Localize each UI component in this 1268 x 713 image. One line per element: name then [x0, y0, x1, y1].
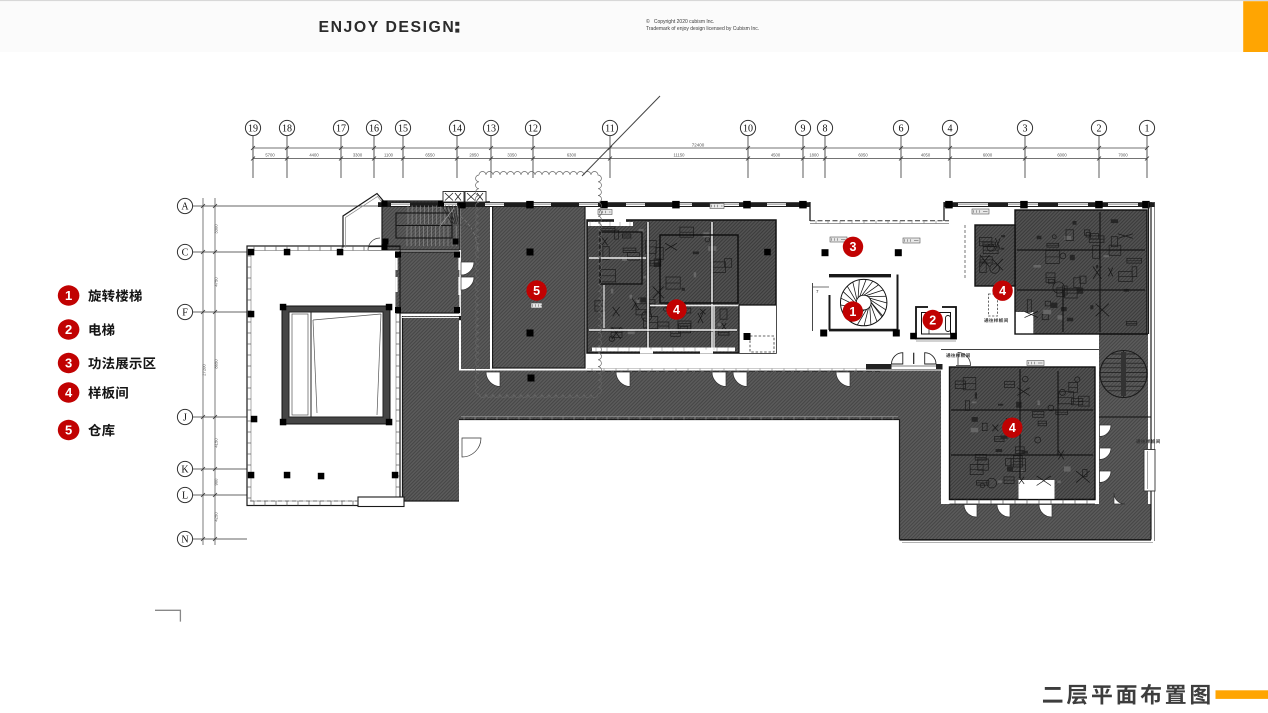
svg-text:6550: 6550	[425, 153, 435, 158]
svg-text:1: 1	[1145, 124, 1150, 135]
svg-text:2: 2	[1097, 124, 1102, 135]
svg-text:C: C	[182, 248, 189, 259]
svg-text:2: 2	[65, 322, 72, 337]
svg-text:6: 6	[899, 124, 904, 135]
svg-text:12: 12	[528, 124, 538, 135]
svg-text:900: 900	[214, 478, 219, 486]
svg-text:K: K	[181, 465, 189, 476]
svg-text:1: 1	[65, 288, 72, 303]
svg-text:72400: 72400	[692, 143, 705, 148]
svg-text:4400: 4400	[309, 153, 319, 158]
svg-text:3: 3	[65, 356, 72, 371]
svg-text:1100: 1100	[384, 153, 394, 158]
svg-text:3350: 3350	[507, 153, 517, 158]
svg-text:27200: 27200	[202, 364, 207, 376]
svg-text:2: 2	[929, 313, 936, 327]
svg-text:5: 5	[65, 423, 72, 438]
svg-text:4: 4	[948, 124, 953, 135]
svg-text:J: J	[183, 413, 187, 424]
svg-text:4750: 4750	[214, 277, 219, 287]
svg-text:4150: 4150	[214, 438, 219, 448]
svg-text:14: 14	[452, 124, 462, 135]
svg-text:3: 3	[850, 240, 857, 254]
svg-text:8650: 8650	[214, 359, 219, 369]
svg-text:6300: 6300	[567, 153, 577, 158]
svg-text:9: 9	[801, 124, 806, 135]
svg-text:6050: 6050	[858, 153, 868, 158]
svg-text:10: 10	[743, 124, 753, 135]
svg-text:L: L	[182, 491, 188, 502]
svg-text:8: 8	[823, 124, 828, 135]
svg-text:16: 16	[369, 124, 379, 135]
svg-text:4500: 4500	[771, 153, 781, 158]
svg-text:© Copyright 2020 cubism Inc.: © Copyright 2020 cubism Inc.	[646, 18, 714, 25]
svg-text:5700: 5700	[265, 153, 275, 158]
svg-text:ENJOY DESIGN: ENJOY DESIGN	[319, 19, 456, 36]
svg-text:4: 4	[65, 385, 73, 400]
svg-text:19: 19	[248, 124, 258, 135]
svg-text:7000: 7000	[1118, 153, 1128, 158]
svg-text:3300: 3300	[353, 153, 363, 158]
svg-text:2850: 2850	[469, 153, 479, 158]
svg-text:11150: 11150	[673, 153, 685, 158]
svg-text:4250: 4250	[214, 512, 219, 522]
svg-text:4050: 4050	[921, 153, 931, 158]
svg-text:3300: 3300	[214, 224, 219, 234]
svg-text:A: A	[181, 202, 189, 213]
svg-text:17: 17	[336, 124, 346, 135]
svg-text:11: 11	[605, 124, 615, 135]
svg-text:6000: 6000	[983, 153, 993, 158]
svg-text:5: 5	[533, 284, 540, 298]
svg-text:3: 3	[1023, 124, 1028, 135]
svg-text:4: 4	[673, 303, 680, 317]
svg-text:1: 1	[849, 305, 856, 319]
svg-text:1800: 1800	[809, 153, 819, 158]
svg-text:13: 13	[486, 124, 496, 135]
svg-text:6000: 6000	[1057, 153, 1067, 158]
svg-text:N: N	[181, 535, 188, 546]
svg-text:4: 4	[999, 284, 1006, 298]
svg-text:F: F	[182, 308, 188, 319]
svg-text:18: 18	[282, 124, 292, 135]
svg-text:Trademark of enjoy design lice: Trademark of enjoy design licensed by Cu…	[646, 26, 759, 32]
svg-text:15: 15	[398, 124, 408, 135]
svg-text:4: 4	[1009, 421, 1016, 435]
